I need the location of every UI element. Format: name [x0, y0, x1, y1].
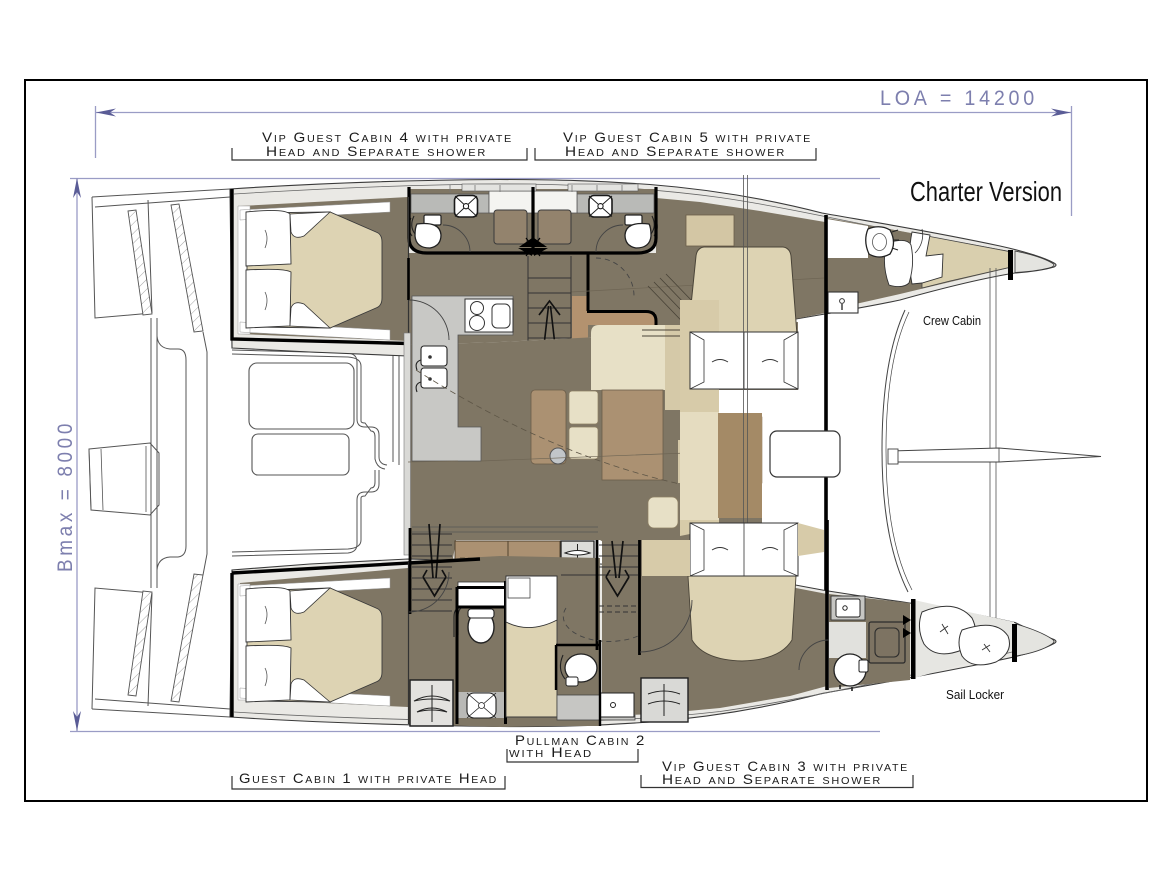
svg-text:Crew Cabin: Crew Cabin [923, 313, 981, 328]
svg-text:Head and Separate shower: Head and Separate shower [662, 771, 882, 787]
svg-text:Sail Locker: Sail Locker [946, 687, 1005, 702]
svg-text:Head and Separate shower: Head and Separate shower [266, 143, 487, 159]
svg-text:LOA = 14200: LOA = 14200 [880, 87, 1038, 110]
svg-text:with Head: with Head [509, 744, 593, 760]
svg-text:Guest Cabin 1 with private Hea: Guest Cabin 1 with private Head [239, 770, 498, 786]
svg-text:Head and Separate shower: Head and Separate shower [565, 143, 786, 159]
svg-text:Charter Version: Charter Version [910, 176, 1062, 207]
svg-text:Bmax = 8000: Bmax = 8000 [54, 420, 77, 572]
